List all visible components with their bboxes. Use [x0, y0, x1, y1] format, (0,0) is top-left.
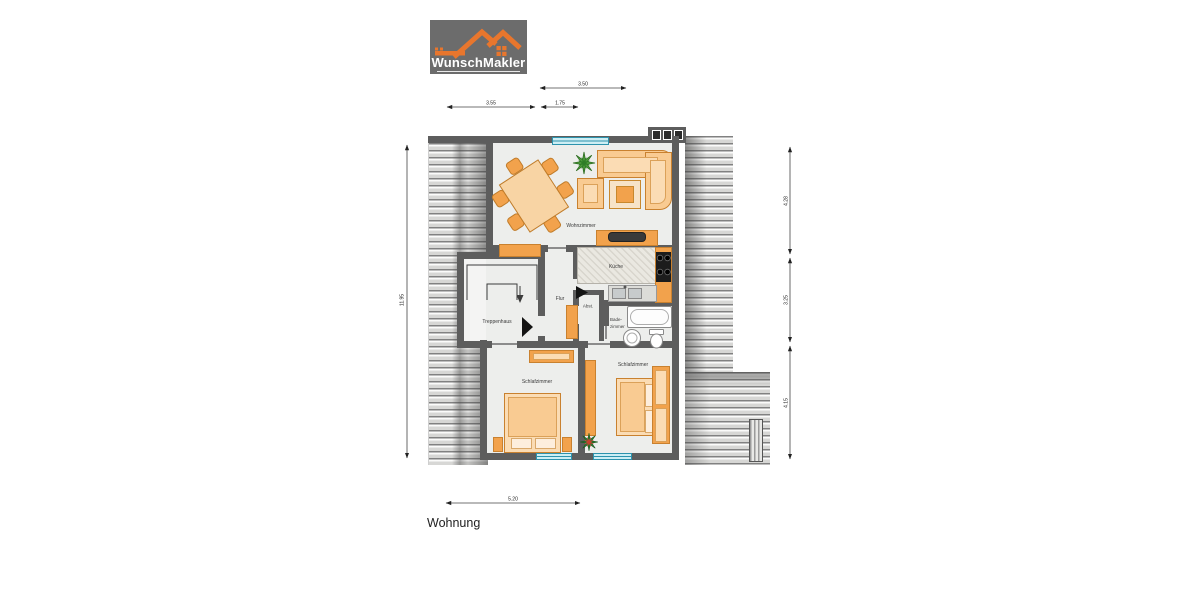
door-swing — [522, 317, 533, 337]
room-label-stairwell: Treppenhaus — [482, 319, 511, 325]
room-label-bedroom-right: Schlafzimmer — [618, 362, 648, 368]
room-label-bath-line1: Bade- — [610, 317, 625, 324]
plant — [573, 152, 595, 174]
dimension-labels: 3.50 3.55 1.75 11.95 4.28 3.25 4.15 5.20 — [400, 82, 790, 503]
faucet — [624, 286, 627, 289]
stove-burners — [657, 255, 670, 275]
room-label-bath: Bade- zimmer — [610, 317, 625, 331]
stairs — [467, 265, 537, 303]
dining-set — [481, 141, 586, 249]
bath-sink — [624, 330, 641, 347]
room-label-storage: Abst. — [583, 303, 593, 308]
dim-upper-left: 3.55 — [486, 101, 496, 107]
plan-overlay: 3.50 3.55 1.75 11.95 4.28 3.25 4.15 5.20 — [0, 0, 1200, 600]
room-label-living: Wohnzimmer — [566, 223, 595, 229]
room-label-bedroom-left: Schlafzimmer — [522, 379, 552, 385]
dim-upper-mid: 1.75 — [555, 101, 565, 107]
dim-right-middle: 3.25 — [784, 295, 790, 305]
door-swing — [576, 286, 588, 299]
dim-right-bottom: 4.15 — [784, 398, 790, 408]
room-label-bath-line2: zimmer — [610, 324, 625, 331]
toilet-bowl — [651, 334, 663, 348]
plan-caption: Wohnung — [427, 516, 480, 530]
floorplan-page: WunschMakler — [0, 0, 1200, 600]
room-label-hall: Flur — [556, 296, 565, 302]
dim-right-top: 4.28 — [784, 196, 790, 206]
dim-bottom: 5.20 — [508, 497, 518, 503]
dim-top: 3.50 — [578, 82, 588, 88]
dimension-lines — [407, 88, 790, 503]
dim-left: 11.95 — [400, 294, 406, 306]
room-label-kitchen: Küche — [609, 264, 623, 270]
plant — [580, 433, 598, 451]
